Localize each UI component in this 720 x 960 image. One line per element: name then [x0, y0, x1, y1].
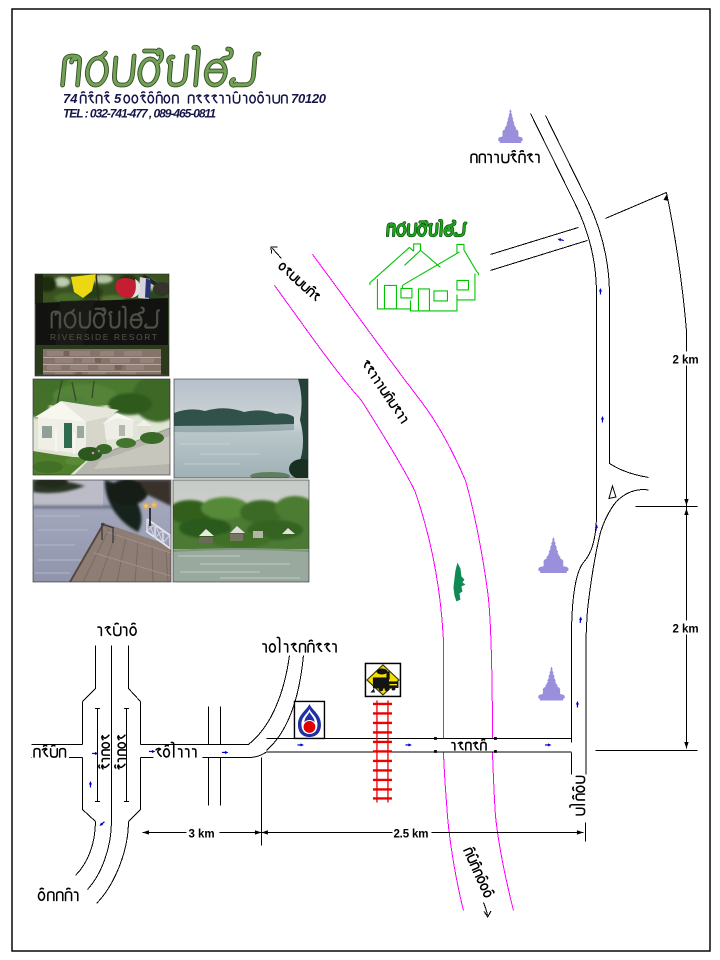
svg-text:2 km: 2 km: [672, 354, 698, 366]
svg-text:RIVERSIDE RESORT: RIVERSIDE RESORT: [50, 332, 158, 342]
svg-text:74: 74: [63, 91, 78, 106]
svg-text:TEL : 032-741-477 , 089-465-08: TEL : 032-741-477 , 089-465-0811: [63, 107, 216, 121]
svg-text:5: 5: [114, 91, 122, 106]
svg-text:2 km: 2 km: [672, 623, 698, 635]
svg-text:70120: 70120: [291, 91, 327, 106]
svg-text:3 km: 3 km: [188, 828, 214, 840]
svg-text:2.5 km: 2.5 km: [393, 828, 428, 840]
